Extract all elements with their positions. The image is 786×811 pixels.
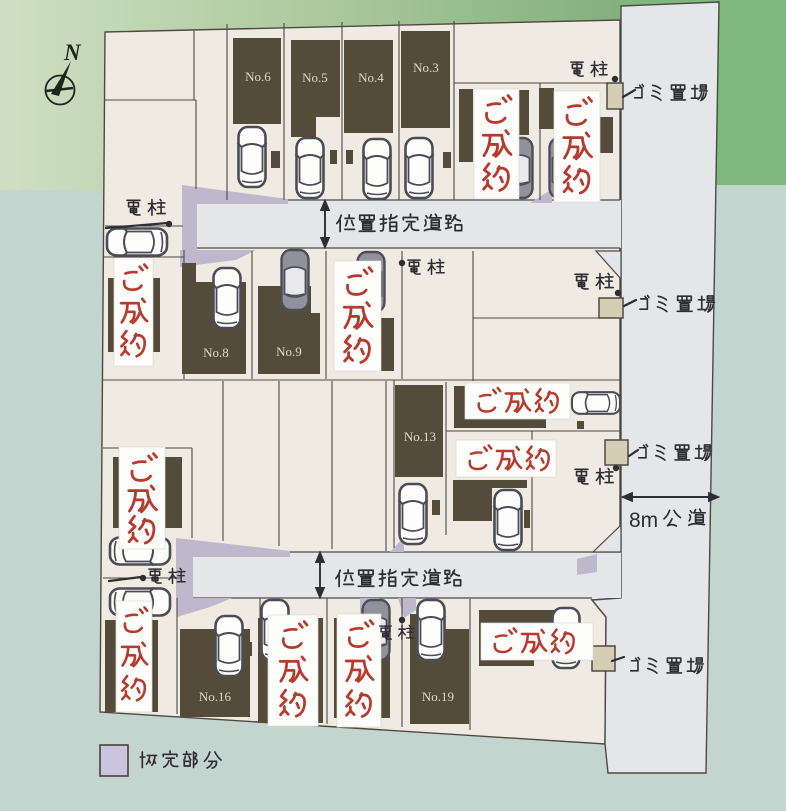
svg-text:8m: 8m	[629, 509, 658, 532]
svg-text:No.13: No.13	[404, 429, 436, 444]
svg-text:No.19: No.19	[422, 689, 454, 704]
svg-text:No.9: No.9	[276, 344, 302, 359]
svg-text:No.5: No.5	[302, 70, 328, 85]
svg-text:No.16: No.16	[199, 689, 232, 704]
svg-text:No.4: No.4	[358, 70, 384, 85]
svg-text:No.8: No.8	[203, 345, 229, 360]
svg-text:No.3: No.3	[413, 60, 439, 75]
svg-text:No.6: No.6	[245, 69, 271, 84]
svg-text:N: N	[63, 40, 82, 65]
